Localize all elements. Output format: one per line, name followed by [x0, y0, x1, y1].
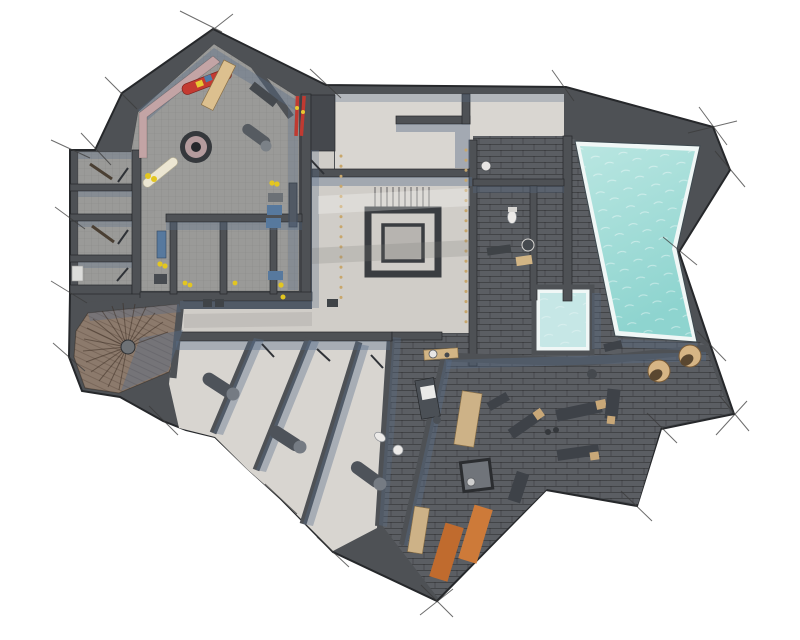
cubicle-boot-3	[233, 281, 238, 286]
locker-boot-3	[278, 282, 283, 287]
cubicle-wall-2	[220, 222, 227, 294]
plunge-east-shadow	[592, 293, 601, 349]
top-room-north-shadow	[335, 94, 564, 102]
ski-boot-yellow-1	[145, 173, 151, 179]
bedroom-cylinder-1-end	[227, 388, 240, 401]
locker-boot-2	[274, 181, 279, 186]
locker-block	[311, 95, 335, 151]
round-side-table	[522, 239, 534, 251]
cellar-divider-wall-3	[70, 255, 132, 262]
shower-cabin	[460, 459, 492, 491]
dumbbell-1	[545, 429, 551, 435]
wc-sink	[393, 445, 403, 455]
massage-towel	[420, 385, 436, 400]
top-room-mid-wall-h	[396, 116, 470, 124]
toilet-cistern	[508, 207, 517, 212]
locker-box-blue-3	[268, 271, 283, 280]
cellar-skiroom-wall	[132, 150, 141, 294]
shower-drain	[467, 478, 475, 486]
locker-box-blue-2	[266, 218, 281, 228]
ski-binding-1	[295, 106, 299, 110]
ski-boot-yellow-2	[151, 176, 157, 182]
cellar-shadow-1	[78, 191, 132, 197]
gym-machine-6-seat	[607, 416, 616, 425]
cellar-shadow-3	[78, 262, 132, 268]
hall-west-wall-shadow	[311, 150, 319, 308]
gym-kettlebell	[587, 369, 597, 379]
cubicle-top-wall	[166, 214, 302, 222]
storage-box-1	[154, 274, 167, 284]
cubicle-boot-1	[183, 281, 188, 286]
hall-east-wall	[469, 140, 477, 366]
wall-gauge	[481, 161, 491, 171]
toilet	[508, 211, 517, 224]
corridor-wall-shadow	[180, 301, 312, 309]
corridor-boot	[281, 295, 286, 300]
shower-wall-shadow	[473, 186, 564, 193]
top-room-south-wall	[312, 169, 472, 177]
ski-binding-2	[301, 110, 305, 114]
floor-plan	[0, 0, 800, 640]
boot-dryer-center	[191, 142, 201, 152]
cellar-wing-end-wall	[70, 285, 132, 294]
gym-floor	[381, 334, 730, 598]
cubicle-wall-shadow	[166, 222, 302, 230]
cellar-divider-wall-2	[70, 214, 132, 221]
locker-box-gray	[268, 193, 283, 202]
cubicle-wall-1	[170, 222, 177, 294]
cellar-appliance	[72, 266, 83, 281]
floor-plan-canvas	[0, 0, 800, 640]
spa-bench-fan	[429, 350, 437, 358]
cellar-divider-wall-1	[70, 184, 132, 191]
spiral-stair-post	[121, 340, 135, 354]
boots-rack-2	[162, 263, 167, 268]
bedroom-cylinder-2-end	[294, 441, 307, 454]
shower-divider-wall-h	[473, 179, 564, 186]
dumbbell-2	[553, 427, 559, 433]
corridor-streak	[184, 312, 312, 328]
cubicle-wall-3	[270, 222, 277, 294]
snowboard-blue-rack	[157, 231, 166, 258]
gym-machine-3-seat	[589, 451, 599, 460]
boots-rack-1	[157, 261, 162, 266]
corridor-box-2	[215, 299, 224, 307]
locker-box-blue-1	[267, 205, 282, 215]
bedroom-cylinder-3-end	[374, 478, 387, 491]
gray-cylinder-end	[261, 141, 272, 152]
bedroom-north-wall	[176, 332, 392, 341]
massage-stool	[433, 416, 441, 424]
corridor-box-3	[327, 299, 338, 307]
cubicle-boot-2	[188, 283, 193, 288]
hall-north-wall-shadow	[312, 177, 472, 186]
corridor-box-1	[203, 299, 212, 307]
spa-bench-knob	[445, 353, 450, 358]
cellar-shadow-2	[78, 221, 132, 227]
shower-deck-wall	[563, 136, 572, 301]
locker-boot-1	[269, 180, 274, 185]
